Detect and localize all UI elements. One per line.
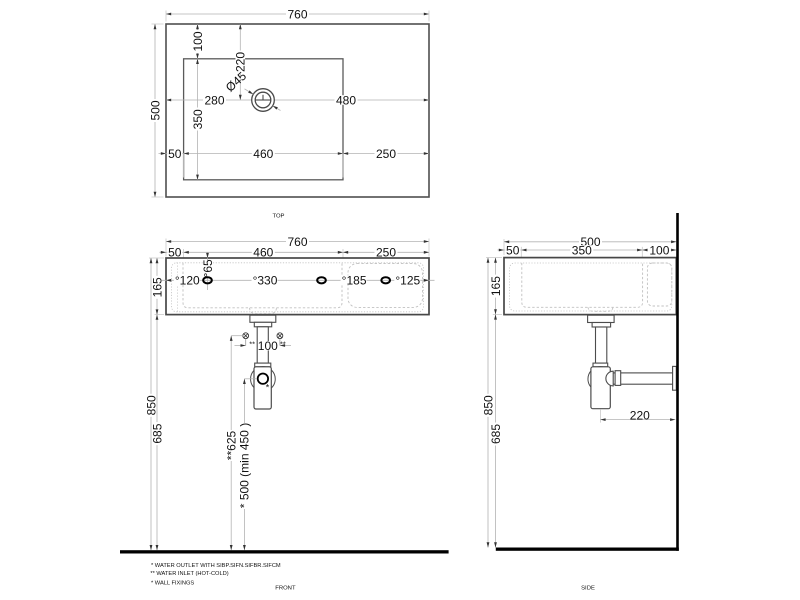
svg-text:** WATER INLET (HOT-COLD): ** WATER INLET (HOT-COLD)	[150, 571, 228, 577]
svg-text:685: 685	[489, 424, 503, 444]
svg-text:480: 480	[336, 93, 356, 107]
svg-text:50: 50	[168, 147, 182, 161]
svg-text:685: 685	[150, 423, 164, 443]
svg-text:350: 350	[191, 109, 205, 129]
svg-text:* 500 (min 450 ): * 500 (min 450 )	[238, 423, 252, 508]
svg-text:350: 350	[572, 243, 592, 257]
svg-text:760: 760	[287, 7, 307, 21]
svg-text:100: 100	[191, 31, 205, 51]
svg-text:220: 220	[234, 52, 248, 72]
svg-text:760: 760	[287, 235, 307, 249]
svg-text:TOP: TOP	[272, 214, 284, 220]
svg-text:165: 165	[489, 276, 503, 296]
svg-text:SIDE: SIDE	[581, 586, 595, 592]
svg-text:165: 165	[150, 277, 164, 297]
svg-text:220: 220	[630, 408, 650, 422]
svg-text:850: 850	[481, 395, 495, 415]
svg-text:100: 100	[649, 243, 669, 257]
svg-text:280: 280	[204, 93, 224, 107]
svg-text:°330: °330	[253, 274, 278, 288]
svg-text:500: 500	[148, 100, 162, 120]
svg-text:850: 850	[144, 395, 158, 415]
svg-text:°125: °125	[395, 274, 420, 288]
svg-text:°120: °120	[175, 274, 200, 288]
svg-text:100: 100	[258, 339, 278, 353]
svg-text:°185: °185	[342, 274, 367, 288]
svg-text:460: 460	[253, 147, 273, 161]
svg-text:50: 50	[506, 243, 520, 257]
svg-text:250: 250	[376, 147, 396, 161]
svg-text:* WATER OUTLET WITH SIBP.SIFN: * WATER OUTLET WITH SIBP.SIFN.SIFBR.SIFC…	[151, 563, 281, 569]
svg-text:**: **	[249, 340, 255, 349]
svg-text:°65: °65	[201, 259, 215, 277]
svg-text:FRONT: FRONT	[275, 586, 296, 592]
svg-text:*: *	[266, 383, 270, 393]
svg-text:**: **	[280, 340, 286, 349]
svg-text:* WALL FIXINGS: * WALL FIXINGS	[151, 581, 194, 587]
svg-text:**625: **625	[225, 431, 239, 461]
